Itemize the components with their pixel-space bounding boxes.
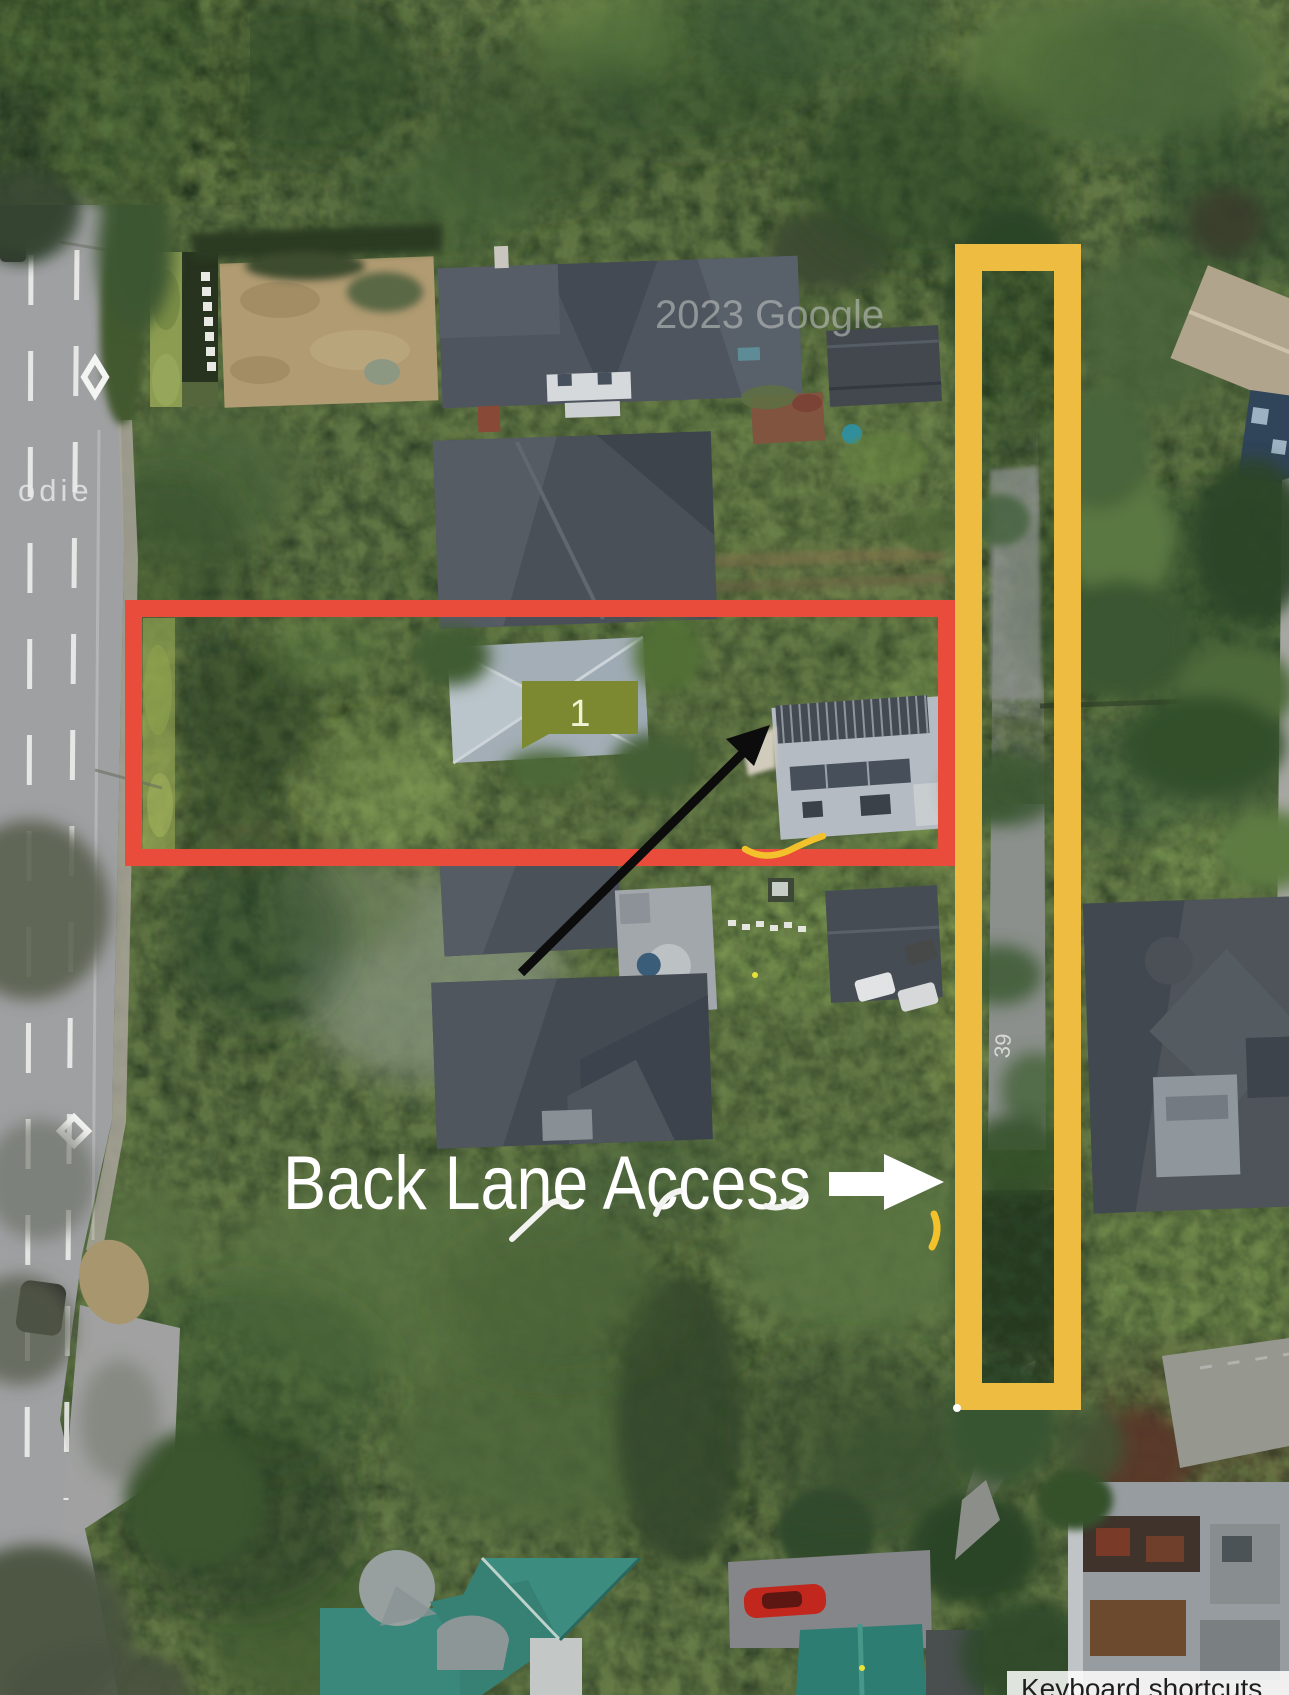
svg-text:Keyboard shortcuts: Keyboard shortcuts bbox=[1021, 1673, 1262, 1695]
svg-text:odie: odie bbox=[18, 473, 93, 508]
svg-text:39: 39 bbox=[989, 1033, 1016, 1060]
svg-text:2023 Google: 2023 Google bbox=[655, 293, 884, 337]
svg-text:1: 1 bbox=[569, 693, 590, 735]
svg-text:Back Lane Access: Back Lane Access bbox=[283, 1141, 811, 1226]
